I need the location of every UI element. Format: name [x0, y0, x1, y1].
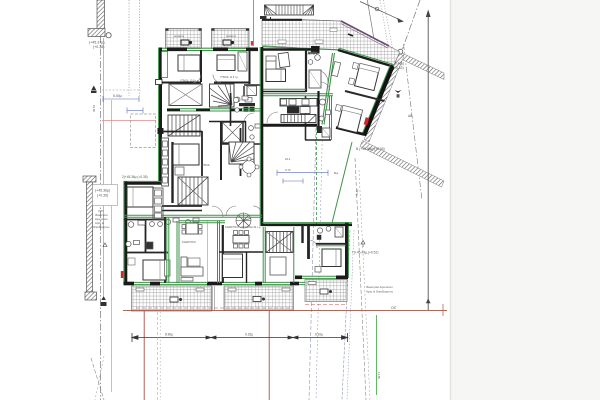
svg-text:39.54: 39.54 — [92, 105, 96, 112]
svg-text:ΒΕΡΑΝΤΑ: ΒΕΡΑΝΤΑ — [226, 35, 236, 38]
svg-text:(+45.36μ): (+45.36μ) — [95, 189, 110, 193]
svg-text:6.10μ: 6.10μ — [315, 333, 323, 337]
svg-text:Βερ.: Βερ. — [334, 172, 339, 175]
svg-text:8.90μ: 8.90μ — [165, 333, 173, 337]
svg-text:5.00μ: 5.00μ — [113, 94, 122, 98]
svg-text:Αρτη & Οικοδομητων: Αρτη & Οικοδομητων — [366, 290, 394, 294]
svg-text:ΥΠΝΟΔ. 11.5 τ.μ.: ΥΠΝΟΔ. 11.5 τ.μ. — [220, 76, 239, 79]
svg-text:Ιδιοκτησία Αγνωστου: Ιδιοκτησία Αγνωστου — [366, 285, 393, 289]
svg-text:ΟΙΓ: ΟΙΓ — [391, 306, 397, 310]
svg-text:Οικοδομητων: Οικοδομητων — [93, 225, 110, 229]
svg-text:ΒΕΡΑΝΤΑ: ΒΕΡΑΝΤΑ — [174, 35, 184, 38]
svg-text:ΛΟΥΤΡΟ: ΛΟΥΤΡΟ — [308, 53, 318, 55]
svg-text:ΥΠΝΟΔ.: ΥΠΝΟΔ. — [201, 164, 210, 167]
svg-text:9.15μ: 9.15μ — [245, 333, 253, 337]
svg-text:(+0.35): (+0.35) — [97, 194, 108, 198]
svg-text:Γ)+45.49μ,(+0.51): Γ)+45.49μ,(+0.51) — [352, 251, 378, 255]
svg-text:(+0.38): (+0.38) — [93, 45, 105, 49]
svg-text:(+0.52): (+0.52) — [393, 66, 404, 70]
svg-text:2)+45.36μ (=0.35): 2)+45.36μ (=0.35) — [122, 175, 148, 179]
svg-text:3.70: 3.70 — [285, 168, 291, 172]
svg-text:Β.(+45.46μ),(+0.50): Β.(+45.46μ),(+0.50) — [356, 147, 385, 151]
svg-text:(+45.37μ): (+45.37μ) — [89, 41, 105, 45]
svg-text:ΚΑΘΙΣΤΙΚΟ: ΚΑΘΙΣΤΙΚΟ — [182, 240, 196, 244]
svg-text:14.50: 14.50 — [377, 372, 381, 379]
svg-text:ΚΑΘΙΣΤΙΚΟ + ΚΟΥΖΙΝΑ 24 τ.μ.: ΚΑΘΙΣΤΙΚΟ + ΚΟΥΖΙΝΑ 24 τ.μ. — [225, 225, 261, 229]
svg-text:22.4: 22.4 — [285, 157, 291, 161]
svg-text:ΔΒ: ΔΒ — [408, 114, 412, 118]
